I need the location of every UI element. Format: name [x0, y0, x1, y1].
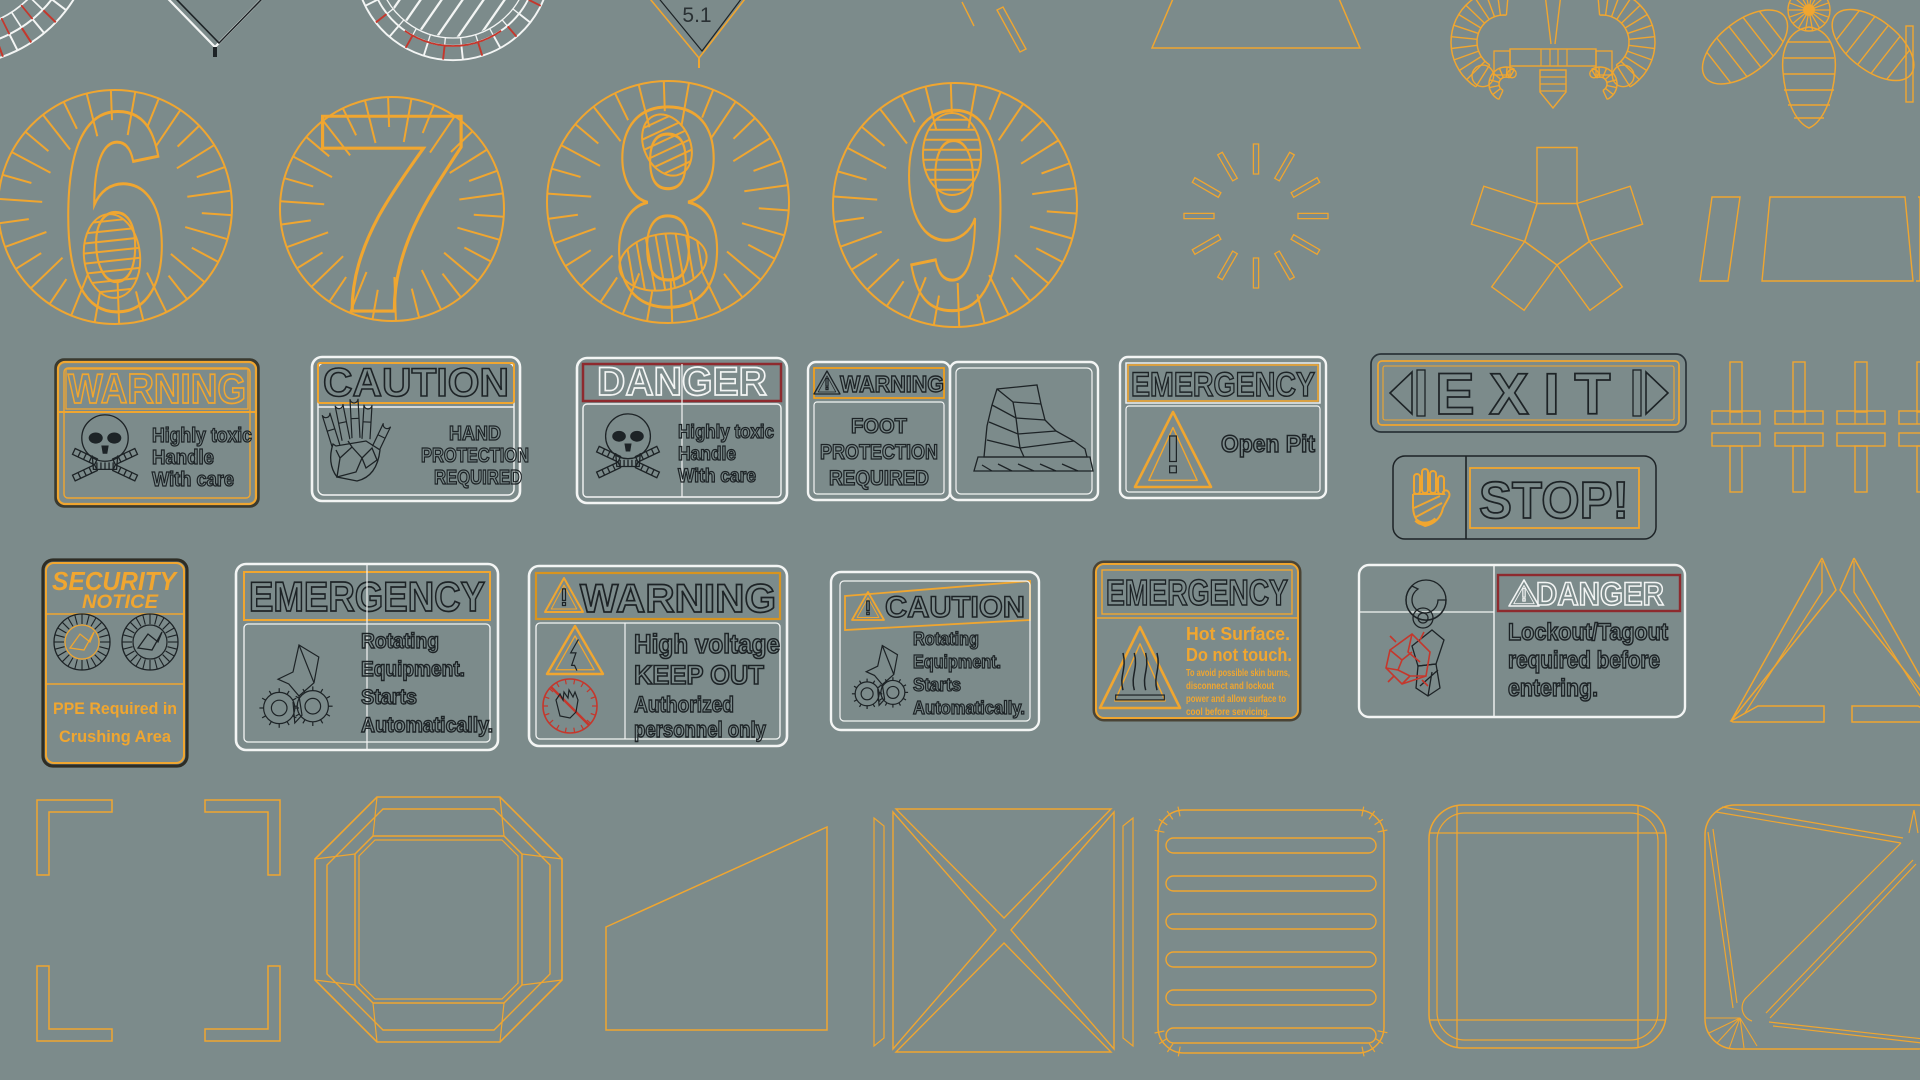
svg-text:CAUTION: CAUTION [323, 361, 509, 405]
svg-text:PROTECTION: PROTECTION [421, 445, 529, 467]
svg-text:REQUIRED: REQUIRED [829, 467, 929, 490]
svg-text:KEEP OUT: KEEP OUT [634, 660, 764, 690]
svg-text:WARNING: WARNING [580, 577, 776, 621]
svg-text:Open Pit: Open Pit [1221, 431, 1315, 458]
svg-text:High voltage: High voltage [634, 629, 780, 659]
svg-text:power and allow surface to: power and allow surface to [1186, 694, 1286, 705]
svg-text:entering.: entering. [1508, 675, 1598, 702]
svg-text:To avoid possible skin burns,: To avoid possible skin burns, [1186, 668, 1290, 679]
svg-text:Crushing Area: Crushing Area [59, 727, 172, 746]
svg-text:Rotating: Rotating [361, 630, 439, 653]
svg-text:With care: With care [152, 469, 234, 491]
svg-text:cool before servicing.: cool before servicing. [1186, 707, 1270, 718]
svg-text:PPE Required in: PPE Required in [53, 699, 177, 718]
svg-text:8: 8 [613, 49, 723, 365]
svg-text:CAUTION: CAUTION [885, 591, 1025, 624]
svg-text:5.1: 5.1 [682, 4, 711, 27]
svg-text:With care: With care [678, 466, 756, 487]
svg-text:Rotating: Rotating [913, 629, 979, 649]
svg-text:required before: required before [1508, 647, 1660, 674]
svg-text:Lockout/Tagout: Lockout/Tagout [1508, 619, 1668, 646]
svg-text:WARNING: WARNING [68, 365, 246, 412]
svg-text:EMERGENCY: EMERGENCY [1131, 366, 1315, 404]
svg-text:Highly toxic: Highly toxic [152, 425, 252, 447]
svg-text:Automatically.: Automatically. [913, 698, 1025, 718]
svg-text:Starts: Starts [913, 675, 961, 695]
svg-text:6: 6 [61, 53, 169, 369]
svg-text:personnel only: personnel only [634, 717, 767, 742]
svg-text:NOTICE: NOTICE [82, 592, 159, 613]
svg-text:disconnect and lockout: disconnect and lockout [1186, 681, 1275, 692]
svg-text:Highly toxic: Highly toxic [678, 422, 774, 443]
svg-text:Automatically.: Automatically. [361, 714, 493, 737]
svg-text:Handle: Handle [678, 444, 736, 465]
svg-text:9: 9 [903, 51, 1008, 368]
svg-text:PROTECTION: PROTECTION [820, 441, 938, 464]
svg-text:EXIT: EXIT [1435, 362, 1625, 427]
svg-text:HAND: HAND [449, 423, 501, 445]
svg-text:Starts: Starts [361, 686, 417, 709]
svg-text:Handle: Handle [152, 447, 214, 469]
svg-text:Authorized: Authorized [634, 692, 734, 717]
svg-text:STOP!: STOP! [1479, 472, 1629, 530]
svg-text:DANGER: DANGER [1536, 576, 1664, 612]
svg-text:WARNING: WARNING [840, 371, 944, 397]
svg-text:REQUIRED: REQUIRED [434, 467, 522, 489]
svg-text:Equipment.: Equipment. [361, 658, 465, 681]
svg-text:FOOT: FOOT [851, 415, 907, 438]
svg-text:Equipment.: Equipment. [913, 652, 1001, 672]
svg-text:Do not touch.: Do not touch. [1186, 645, 1292, 665]
svg-text:Hot Surface.: Hot Surface. [1186, 624, 1290, 644]
svg-text:7: 7 [310, 56, 474, 372]
svg-text:EMERGENCY: EMERGENCY [1106, 572, 1288, 613]
